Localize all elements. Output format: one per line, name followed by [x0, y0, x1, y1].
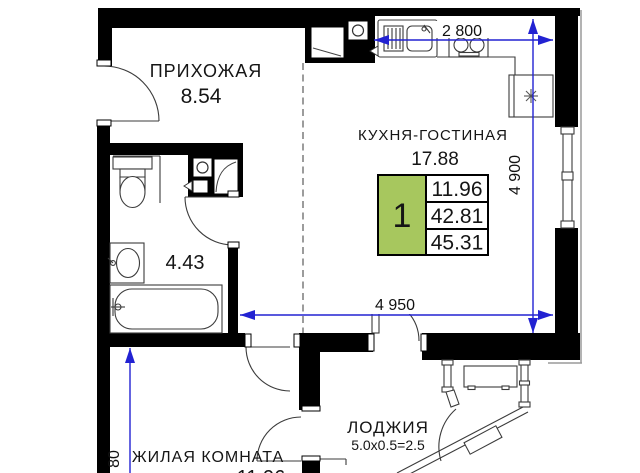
info-table-living-area: 11.96: [432, 178, 483, 201]
wall-bath-bottom: [97, 333, 245, 347]
vent-shaft-kitchen-icon: [305, 16, 378, 63]
loggia-name: ЛОДЖИЯ: [347, 418, 429, 437]
info-table: 1 11.96 42.81 45.31: [378, 175, 488, 255]
dim-label-4950: 4 950: [375, 297, 415, 314]
info-table-area-no-loggia: 42.81: [431, 205, 484, 228]
wall-lshape-vertical: [299, 333, 320, 410]
toilet-icon: [113, 156, 160, 208]
floor-plan-page: 2 800 4 900 4 950 80 ПРИХОЖАЯ 8.54 КУХНЯ…: [0, 0, 640, 473]
wall-top-thin: [305, 8, 580, 16]
loggia-glazing-icon: [320, 360, 530, 473]
doors: [104, 66, 456, 461]
loggia-inner-door-swing: [439, 409, 456, 461]
wall-left-upper: [98, 8, 112, 66]
wall-hall-bath: [98, 143, 243, 155]
hallway-area: 8.54: [181, 85, 222, 108]
wall-bath-right: [228, 243, 238, 335]
wall-right-lower: [555, 228, 578, 334]
wall-kitchen-bottom: [422, 333, 580, 360]
wall-top-left: [98, 8, 312, 28]
kitchen-counter: [437, 57, 515, 75]
living-room-door-swing: [246, 347, 290, 391]
shower-icon: [214, 159, 238, 194]
window-right-icon: [555, 127, 578, 228]
sink-icon: [108, 243, 144, 283]
kitchen-living-area: 17.88: [411, 149, 459, 170]
info-table-total-area: 45.31: [431, 232, 484, 255]
snowflake-icon: [524, 89, 538, 103]
floor-plan-svg: 2 800 4 900 4 950 80 ПРИХОЖАЯ 8.54 КУХНЯ…: [0, 0, 640, 473]
loggia-bench: [464, 366, 517, 390]
dim-label-2800: 2 800: [442, 23, 482, 40]
info-table-rooms-count: 1: [393, 197, 412, 235]
living-room-name: ЖИЛАЯ КОМНАТА: [132, 449, 284, 466]
bathroom-area: 4.43: [166, 252, 205, 274]
wall-right-upper: [555, 10, 578, 127]
wall-stub-bottom: [302, 461, 320, 473]
living-room-area: 11.96: [237, 467, 286, 473]
door-jambs: [97, 60, 427, 461]
dim-label-4900: 4 900: [507, 155, 524, 195]
loggia-area-formula: 5.0x0.5=2.5: [351, 437, 425, 453]
bathroom-door-swing: [185, 197, 233, 245]
dim-kitchen-depth: [528, 19, 538, 333]
fridge-icon: [509, 75, 553, 117]
wall-left-main: [97, 124, 110, 473]
kitchen-living-name: КУХНЯ-ГОСТИНАЯ: [358, 127, 508, 144]
bathtub-icon: [110, 285, 222, 333]
dim-label-80-partial: 80: [106, 450, 123, 468]
hallway-name: ПРИХОЖАЯ: [150, 61, 263, 81]
